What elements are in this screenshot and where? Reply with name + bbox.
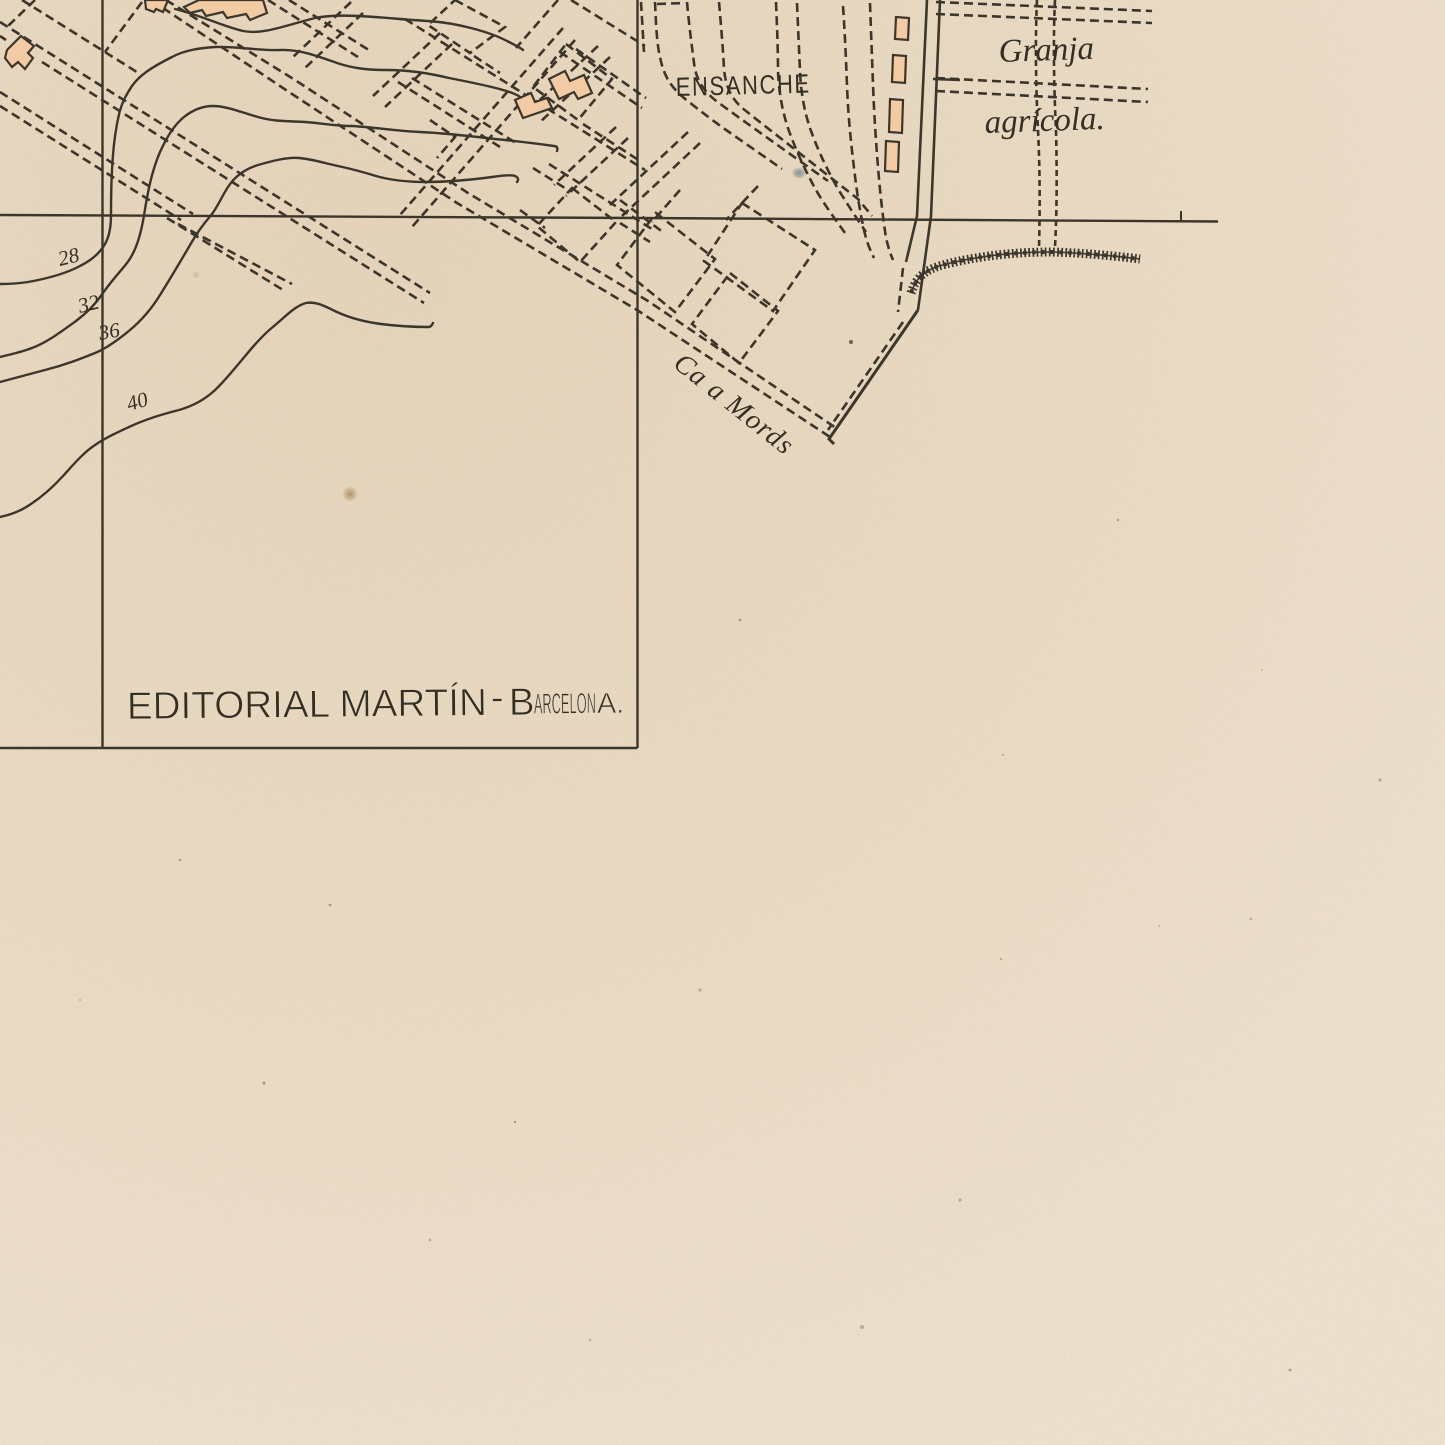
svg-text:A.: A.	[597, 688, 625, 720]
svg-text:36: 36	[96, 318, 122, 346]
svg-text:-: -	[491, 676, 504, 719]
svg-text:EDITORIAL MARTÍN: EDITORIAL MARTÍN	[127, 681, 487, 728]
svg-text:Granja: Granja	[998, 31, 1095, 70]
svg-text:ARCELON: ARCELON	[534, 688, 596, 721]
svg-text:agrícola.: agrícola.	[984, 101, 1105, 141]
svg-text:ENSANCHE: ENSANCHE	[675, 68, 811, 102]
svg-text:B: B	[509, 681, 535, 724]
